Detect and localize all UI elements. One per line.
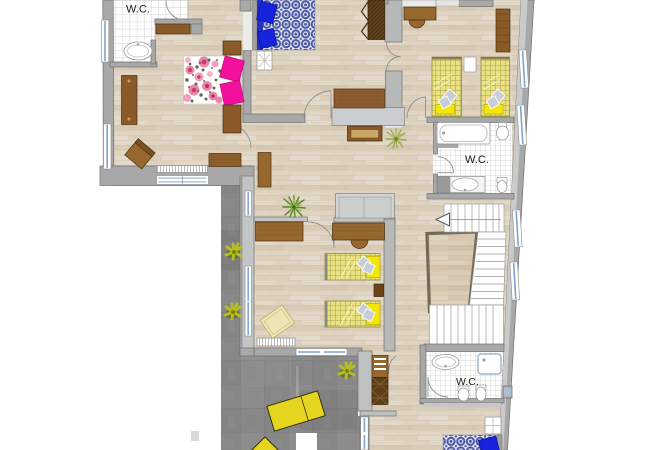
svg-text:W.C.: W.C.	[456, 376, 479, 388]
svg-text:W.C.: W.C.	[126, 4, 150, 16]
svg-text:W.C.: W.C.	[465, 154, 489, 166]
